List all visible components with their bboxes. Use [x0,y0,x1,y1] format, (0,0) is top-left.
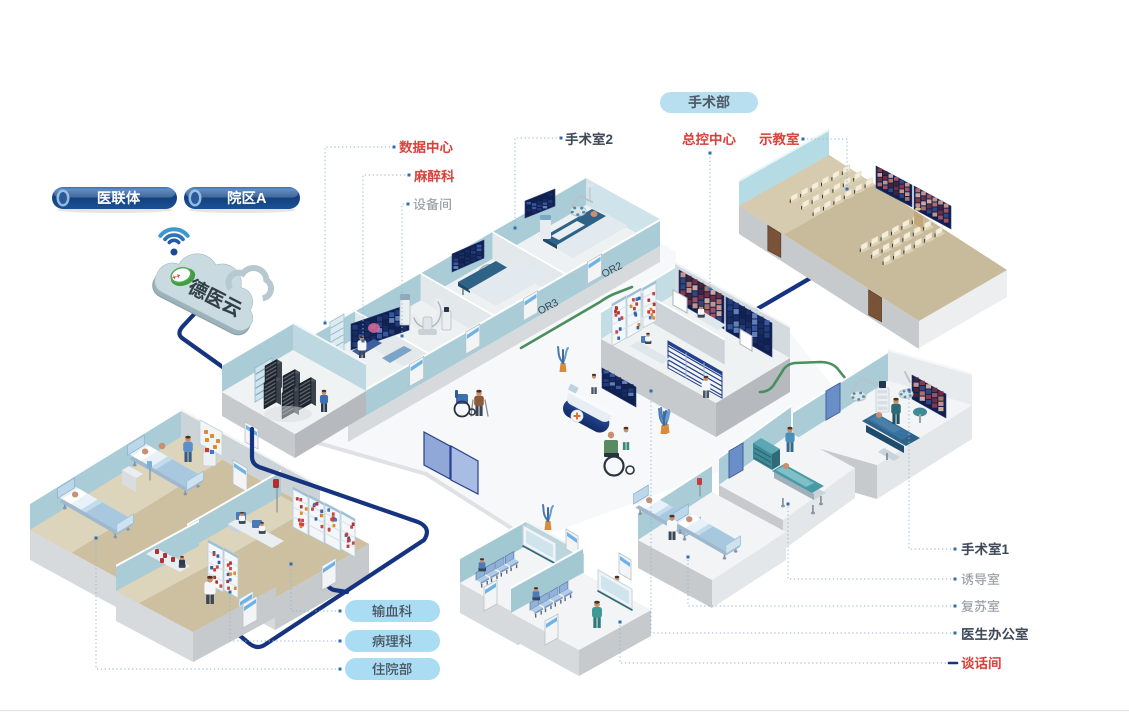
svg-text:2: 2 [606,132,614,147]
svg-text:A: A [256,191,267,207]
svg-text:1: 1 [1002,542,1010,557]
